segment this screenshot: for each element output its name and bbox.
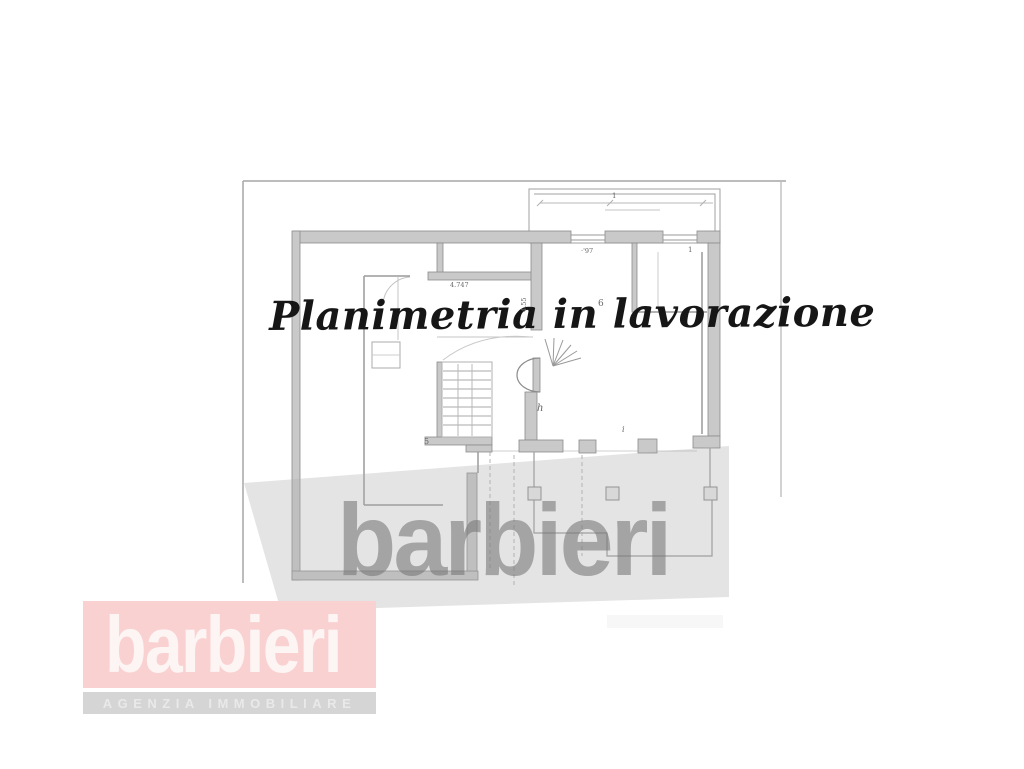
agency-logo-subtitle-text: AGENZIA IMMOBILIARE	[103, 697, 357, 710]
plan-geometry	[437, 362, 442, 443]
listing-photo-canvas: barbieri Planimetria in lavorazione 6 h …	[0, 0, 1024, 769]
dimension-label-top: 1	[612, 193, 616, 200]
agency-logo-subtitle-bar: AGENZIA IMMOBILIARE	[83, 692, 376, 714]
dimension-label-horizontal: 4.747	[450, 282, 469, 289]
plan-geometry	[428, 272, 533, 280]
agency-logo: barbieri	[83, 601, 376, 688]
dimension-label-97: ·'97	[581, 248, 593, 255]
plan-geometry	[605, 231, 663, 243]
plan-geometry	[545, 339, 553, 366]
plan-geometry	[638, 439, 657, 453]
agency-logo-brand-text: barbieri	[105, 605, 341, 685]
plan-geometry	[293, 231, 571, 243]
staircase	[442, 338, 581, 437]
stair-letter-label: h	[537, 404, 543, 414]
plan-geometry	[553, 358, 581, 366]
plan-status-overlay-text: Planimetria in lavorazione	[269, 293, 875, 337]
wall-number-label: 5	[424, 438, 429, 446]
plan-geometry	[442, 362, 492, 437]
plan-geometry	[579, 440, 596, 453]
plan-geometry	[553, 338, 554, 366]
plan-geometry	[519, 440, 563, 452]
plan-geometry	[553, 340, 563, 366]
room-number-label: 6	[598, 300, 604, 309]
dimension-label-i: i	[622, 426, 625, 434]
plan-geometry	[553, 351, 577, 366]
plan-geometry	[425, 437, 492, 445]
plan-geometry	[697, 231, 720, 243]
watermark-band-shadow	[607, 615, 723, 628]
dimension-label-right: 1	[688, 247, 692, 254]
plan-geometry	[553, 345, 571, 366]
plan-geometry	[693, 436, 720, 448]
plan-geometry	[533, 358, 540, 392]
brand-watermark-text: barbieri	[337, 489, 670, 591]
dimension-label-vertical: 4.55	[521, 298, 528, 312]
plan-geometry	[708, 243, 720, 436]
plan-geometry	[466, 445, 492, 452]
plan-geometry	[443, 336, 531, 360]
stair-fan	[545, 338, 581, 366]
plan-geometry	[443, 371, 491, 425]
plan-geometry	[525, 392, 537, 440]
plan-geometry	[437, 243, 443, 276]
